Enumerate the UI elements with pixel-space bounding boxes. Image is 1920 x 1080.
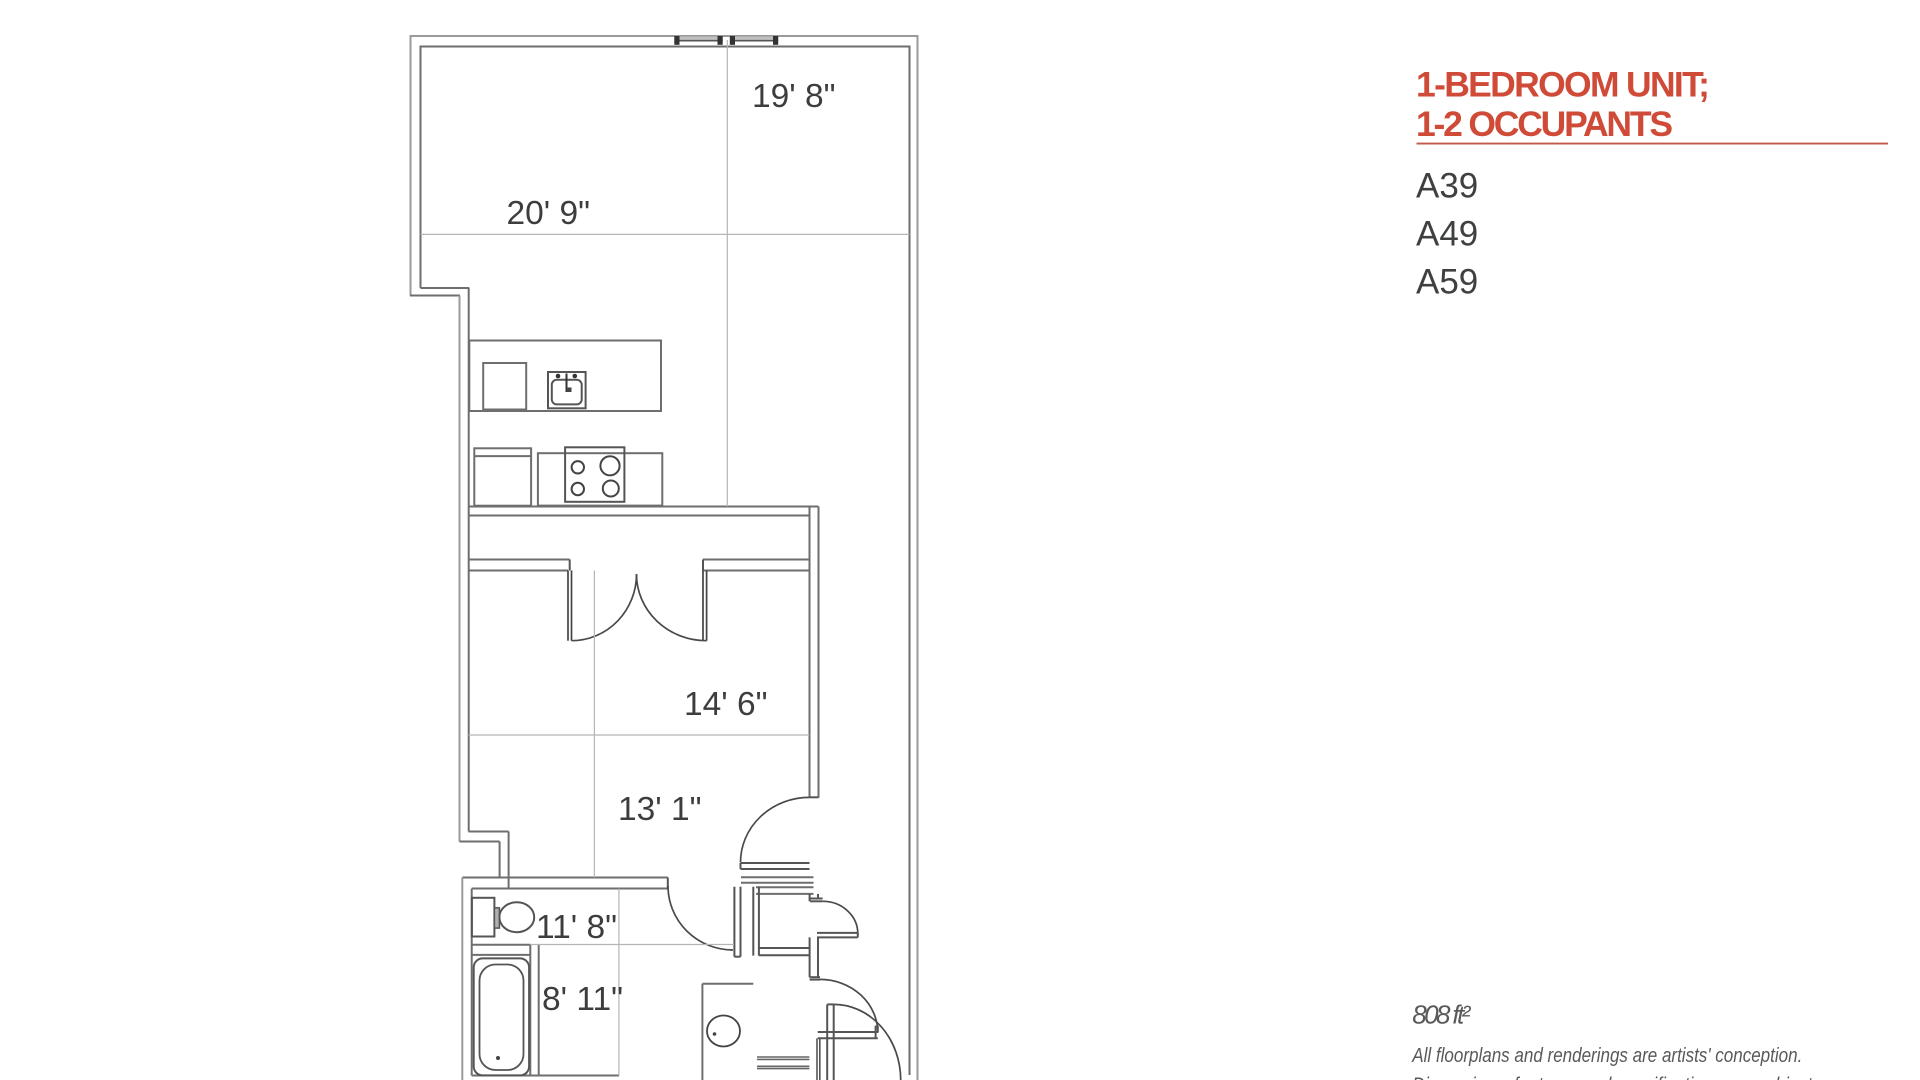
svg-text:8' 11": 8' 11" — [542, 981, 623, 1018]
svg-text:20' 9": 20' 9" — [507, 195, 591, 232]
svg-text:A39: A39 — [1416, 166, 1478, 205]
svg-text:A49: A49 — [1416, 215, 1478, 254]
svg-text:14' 6": 14' 6" — [684, 686, 768, 723]
svg-text:All floorplans and renderings: All floorplans and renderings are artist… — [1411, 1045, 1802, 1067]
svg-text:1-2 OCCUPANTS: 1-2 OCCUPANTS — [1416, 104, 1673, 144]
svg-text:1-BEDROOM UNIT;: 1-BEDROOM UNIT; — [1416, 65, 1710, 105]
svg-text:A59: A59 — [1416, 263, 1478, 302]
svg-text:808 ft²: 808 ft² — [1412, 1000, 1471, 1030]
svg-text:11' 8": 11' 8" — [536, 909, 617, 946]
svg-text:13' 1": 13' 1" — [618, 791, 702, 828]
svg-text:19' 8": 19' 8" — [752, 78, 836, 115]
svg-text:Dimensions, features and speci: Dimensions, features and specifications … — [1412, 1075, 1813, 1080]
